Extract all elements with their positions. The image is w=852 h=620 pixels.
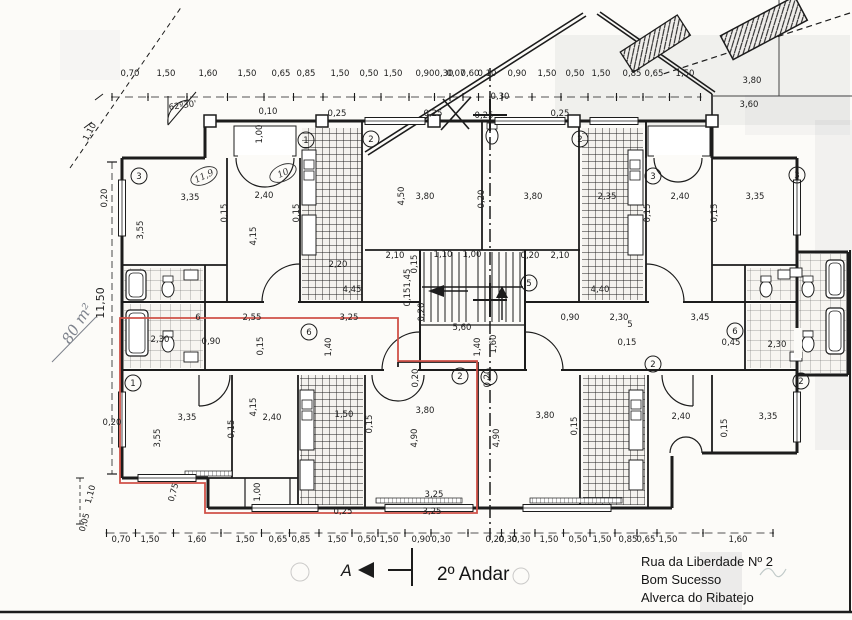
dim-tick-dot: [501, 532, 503, 534]
dim-label: 2,10: [551, 251, 570, 261]
dim-label: 0,15: [292, 204, 302, 223]
dim-tick-dot: [563, 532, 565, 534]
room-number: 1: [130, 379, 135, 389]
sink-basin: [304, 171, 314, 180]
dim-tick-dot: [430, 532, 432, 534]
dim-label: 3,45: [691, 313, 710, 323]
room-number: 6: [732, 327, 737, 337]
dim-label: 1,45: [403, 269, 413, 288]
dim-row-label: 1,50: [592, 69, 611, 79]
dim-tick-dot: [642, 96, 644, 98]
dim-label: 3,80: [416, 406, 435, 416]
door-opening: [199, 372, 230, 378]
dim-tick-dot: [589, 532, 591, 534]
dim-label: 6: [195, 313, 200, 323]
scanned-floor-plan-page: 0,701,501,601,500,650,851,500,501,500,90…: [0, 0, 852, 620]
dim-row-label: 0,90: [508, 69, 527, 79]
dim-tick-dot: [380, 96, 382, 98]
dim-label: 0,15: [220, 204, 230, 223]
dim-tick-dot: [263, 96, 265, 98]
dim-label: 2,30: [151, 335, 170, 345]
dim-label: 1,40: [473, 338, 483, 357]
dim-label: 1,60: [489, 335, 499, 354]
room-number: 2: [577, 135, 582, 145]
dim-label: 0,20: [417, 303, 427, 322]
sink-basin: [302, 400, 312, 409]
dim-tick-dot: [467, 532, 469, 534]
dim-tick-dot: [772, 532, 774, 534]
dim-row-label: 1,50: [331, 69, 350, 79]
counter: [628, 215, 643, 255]
address-line-1: Rua da Liberdade Nº 2: [641, 554, 773, 569]
dim-label: 1,00: [463, 250, 482, 260]
dim-row-label: 0,10: [478, 69, 497, 79]
dim-row-label: 0,50: [566, 69, 585, 79]
dim-row-label: 0,70: [112, 535, 131, 545]
counter: [234, 126, 296, 156]
sink-basin: [304, 160, 314, 169]
door-opening: [670, 450, 702, 456]
wash-basin: [790, 268, 802, 277]
dim-label: 3,60: [740, 100, 759, 110]
dim-label: 0,25: [334, 507, 353, 517]
dim-label: 4,90: [410, 429, 420, 448]
dim-label: 0,90: [202, 337, 221, 347]
dim-label: 3,25: [423, 507, 442, 517]
door-opening: [238, 155, 292, 161]
door-opening: [527, 367, 561, 373]
section-marker-label: A: [340, 561, 352, 580]
dim-label: 3,80: [416, 192, 435, 202]
dim-label: 2,40: [672, 412, 691, 422]
dim-row-label: 1,50: [236, 535, 255, 545]
dim-label: 0,15: [720, 419, 730, 438]
dim-label: 2,40: [255, 191, 274, 201]
dim-label: 0,30: [491, 92, 510, 102]
dim-label: 4,45: [343, 285, 362, 295]
dim-tick-dot: [636, 532, 638, 534]
dim-row-label: 0,50: [358, 535, 377, 545]
dim-row-label: 0,65: [272, 69, 291, 79]
dim-label: 0,25: [424, 109, 443, 119]
dim-row-label: 0,65: [645, 69, 664, 79]
dim-label: 0,15: [256, 337, 266, 356]
dim-label: 3,35: [759, 412, 778, 422]
dim-label: 5,60: [453, 323, 472, 333]
room-number: 2: [650, 360, 655, 370]
dim-label: 3,80: [536, 411, 555, 421]
dim-row-label: 0,85: [297, 69, 316, 79]
facade-column: [568, 115, 580, 127]
room-number: 2: [368, 135, 373, 145]
dim-tick-dot: [616, 96, 618, 98]
dim-tick-dot: [186, 96, 188, 98]
scan-smudge: [60, 30, 120, 80]
toilet: [760, 281, 772, 297]
dim-label: 1,40: [324, 338, 334, 357]
dim-row-label: 1,50: [238, 69, 257, 79]
counter: [629, 460, 643, 490]
facade-column: [706, 115, 718, 127]
room-number: 3: [136, 172, 141, 182]
wash-basin: [778, 270, 790, 279]
dim-tick-dot: [614, 532, 616, 534]
dim-row-label: 0,65: [269, 535, 288, 545]
dim-tick-dot: [354, 96, 356, 98]
door-opening: [264, 299, 298, 305]
dim-tick-dot: [656, 532, 658, 534]
dim-row-label: 0,50: [360, 69, 379, 79]
dim-row-label: 0,65: [637, 535, 656, 545]
dim-tick-dot: [106, 532, 108, 534]
dim-tick-dot: [293, 96, 295, 98]
toilet-tank: [761, 276, 771, 282]
dim-label: 0,15: [570, 417, 580, 436]
dim-row-label: 1,50: [659, 535, 678, 545]
dim-row-label: 1,50: [538, 69, 557, 79]
room-number: 3: [794, 171, 799, 181]
dim-tick-dot: [261, 532, 263, 534]
dim-tick-dot: [587, 96, 589, 98]
dim-label: 3,80: [524, 192, 543, 202]
dim-tick-dot: [289, 532, 291, 534]
toilet: [802, 281, 814, 297]
bathroom-tiled-floor: [747, 304, 795, 368]
dim-tick-dot: [700, 96, 702, 98]
room-number: 1: [486, 373, 491, 383]
room-number: 2: [457, 372, 462, 382]
dim-label: 0,25: [475, 111, 494, 121]
dim-label: 3,35: [178, 413, 197, 423]
address-line-2: Bom Sucesso: [641, 572, 721, 587]
counter: [300, 460, 314, 490]
dim-label: 0,15: [403, 288, 413, 307]
dim-tick-dot: [560, 96, 562, 98]
dim-row-label: 1,50: [540, 535, 559, 545]
dim-row-label: 1,60: [188, 535, 207, 545]
dim-label: 0,20: [521, 251, 540, 261]
sink-basin: [302, 411, 312, 420]
room-number: 6: [306, 328, 311, 338]
dim-label: 0,15: [365, 415, 375, 434]
dim-row-label: 1,50: [384, 69, 403, 79]
dim-label: 4,15: [249, 398, 259, 417]
dim-label: 0,15: [618, 338, 637, 348]
dim-row-label: 1,50: [676, 69, 695, 79]
room-number: 1: [303, 136, 308, 146]
sink-basin: [631, 411, 641, 420]
page-title: 2º Andar: [437, 564, 510, 585]
dim-row-label: 0,30: [432, 535, 451, 545]
dim-row-label: 0,85: [292, 535, 311, 545]
overall-height-dimension: 11,50: [94, 287, 107, 319]
dim-label: 4,15: [249, 227, 259, 246]
dim-tick-dot: [534, 532, 536, 534]
dim-row-label: 1,50: [593, 535, 612, 545]
dim-label: 0,10: [259, 107, 278, 117]
dim-label: 1,00: [253, 483, 263, 502]
dim-tick-dot: [227, 96, 229, 98]
dim-tick-dot: [408, 96, 410, 98]
dim-label: 0,20: [411, 369, 421, 388]
dim-tick-dot: [173, 532, 175, 534]
facade-column: [204, 115, 216, 127]
dim-label: 0,15: [643, 204, 653, 223]
dim-label: 0,20: [103, 418, 122, 428]
dim-tick-dot: [702, 532, 704, 534]
dim-row-label: 0,90: [412, 535, 431, 545]
dim-label: 0,25: [551, 109, 570, 119]
room-number: 5: [526, 279, 531, 289]
room-number: 2: [798, 377, 803, 387]
dim-label: 3,35: [746, 192, 765, 202]
dim-label: 4,90: [492, 429, 502, 448]
facade-column: [316, 115, 328, 127]
dim-label: 2,40: [263, 413, 282, 423]
dim-label: 0,90: [561, 313, 580, 323]
dim-label: 1,00: [255, 125, 265, 144]
dim-label: 2,35: [598, 192, 617, 202]
dim-label: 0,45: [722, 338, 741, 348]
dim-tick-dot: [531, 96, 533, 98]
dim-label: 3,80: [743, 76, 762, 86]
dim-label: 0,15: [710, 204, 720, 223]
dim-row-label: 0,70: [121, 69, 140, 79]
door-opening: [649, 299, 683, 305]
toilet: [802, 336, 814, 352]
dim-tick-dot: [449, 96, 451, 98]
sink-basin: [630, 171, 640, 180]
dim-label: 0,25: [328, 109, 347, 119]
dim-label: 1,10: [434, 250, 453, 260]
toilet-tank: [803, 331, 813, 337]
dim-tick-dot: [514, 532, 516, 534]
dim-label: 3,35: [181, 193, 200, 203]
dim-tick-dot: [318, 532, 320, 534]
dim-label: 2,55: [243, 313, 262, 323]
dim-label: 0,20: [477, 190, 487, 209]
dim-row-label: 1,60: [729, 535, 748, 545]
toilet-tank: [163, 276, 173, 282]
dim-label: 3,55: [136, 221, 146, 240]
balcony-edge: [530, 498, 622, 503]
dim-row-label: 1,50: [380, 535, 399, 545]
dim-label: 0,15: [227, 420, 237, 439]
dim-label: 0,20: [100, 189, 110, 208]
scan-smudge: [745, 95, 850, 135]
door-opening: [654, 155, 702, 161]
dim-tick-dot: [111, 96, 113, 98]
dim-label: 2,30: [610, 313, 629, 323]
dim-tick-dot: [377, 532, 379, 534]
dim-label: 2,40: [671, 192, 690, 202]
dim-label: 2,20: [329, 260, 348, 270]
dim-tick-dot: [351, 532, 353, 534]
wash-basin: [184, 352, 198, 362]
dim-tick-dot: [462, 96, 464, 98]
dim-tick-dot: [434, 96, 436, 98]
dim-row-label: 0,50: [569, 535, 588, 545]
dim-tick-dot: [147, 96, 149, 98]
dim-tick-dot: [478, 96, 480, 98]
dim-label: 1,50: [335, 410, 354, 420]
wash-basin: [184, 270, 198, 280]
counter: [302, 215, 316, 255]
dim-label: 5: [627, 320, 632, 330]
dim-label: 4,50: [397, 187, 407, 206]
door-opening: [794, 328, 802, 358]
dim-row-label: 0,85: [619, 535, 638, 545]
dim-row-label: 1,60: [199, 69, 218, 79]
dim-label: 3,25: [425, 490, 444, 500]
balcony-edge: [376, 498, 462, 503]
dim-tick-dot: [220, 532, 222, 534]
dim-row-label: 1,50: [328, 535, 347, 545]
dim-tick-dot: [404, 532, 406, 534]
dim-row-label: 1,50: [141, 535, 160, 545]
dim-label: 3,55: [153, 429, 163, 448]
room-number: 3: [650, 172, 655, 182]
sink-basin: [631, 400, 641, 409]
door-opening: [661, 372, 692, 378]
dim-row-label: 0,85: [623, 69, 642, 79]
dim-label: 4,40: [591, 285, 610, 295]
dim-tick-dot: [135, 532, 137, 534]
dim-label: 2,30: [768, 340, 787, 350]
dim-tick-dot: [669, 96, 671, 98]
sink-basin: [630, 160, 640, 169]
toilet-tank: [803, 276, 813, 282]
floor-plan-drawing: 0,701,501,601,500,650,851,500,501,500,90…: [0, 0, 852, 620]
dim-label: 2,10: [386, 251, 405, 261]
toilet: [486, 128, 498, 144]
counter: [648, 126, 710, 156]
toilet: [162, 281, 174, 297]
dim-tick-dot: [322, 96, 324, 98]
dim-label: 3,25: [340, 313, 359, 323]
dim-row-label: 0,90: [416, 69, 435, 79]
address-line-3: Alverca do Ribatejo: [641, 590, 754, 605]
dim-row-label: 1,50: [157, 69, 176, 79]
